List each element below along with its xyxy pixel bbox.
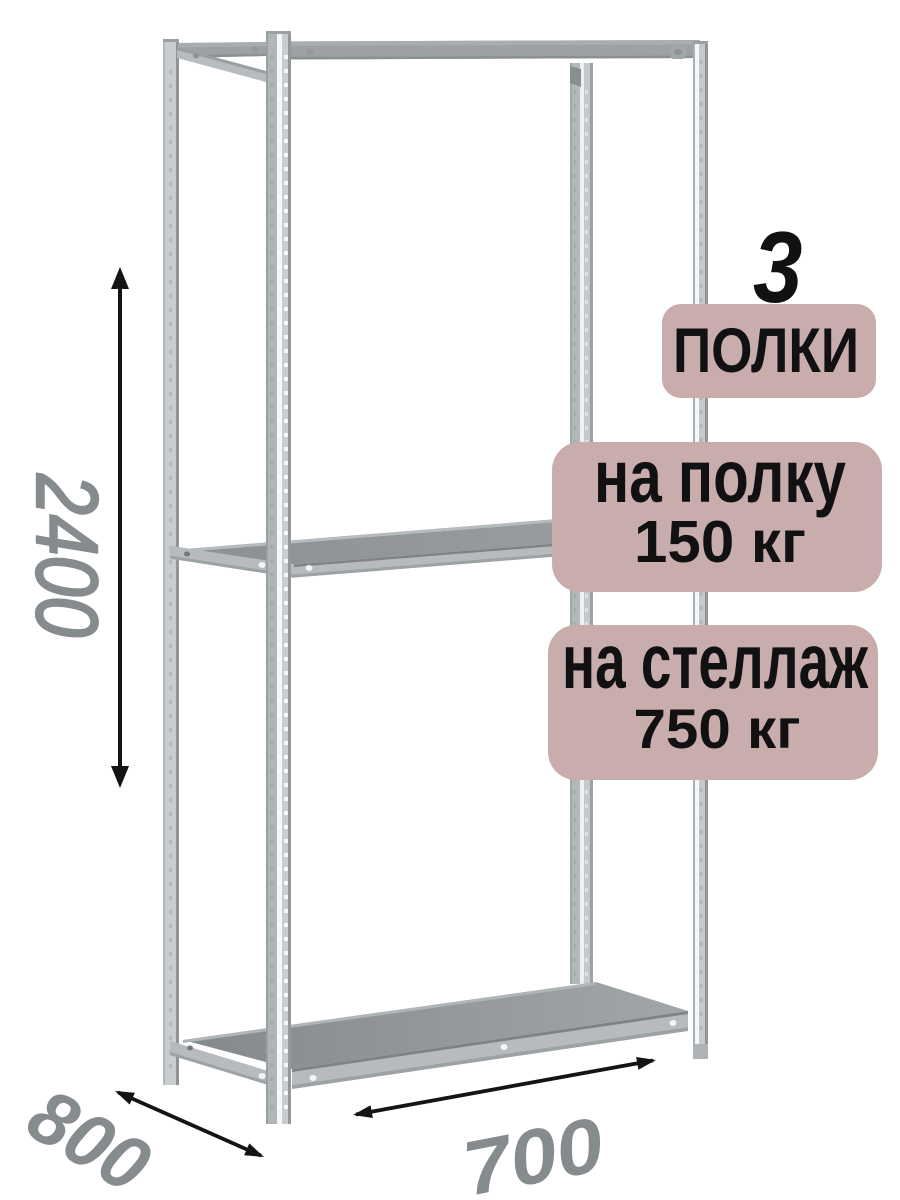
svg-text:2400: 2400	[18, 473, 115, 637]
svg-text:150 кг: 150 кг	[634, 509, 806, 575]
svg-text:на стеллаж: на стеллаж	[562, 619, 869, 705]
svg-text:на полку: на полку	[594, 435, 846, 518]
svg-text:750 кг: 750 кг	[634, 697, 801, 760]
svg-text:ПОЛКИ: ПОЛКИ	[673, 316, 859, 386]
